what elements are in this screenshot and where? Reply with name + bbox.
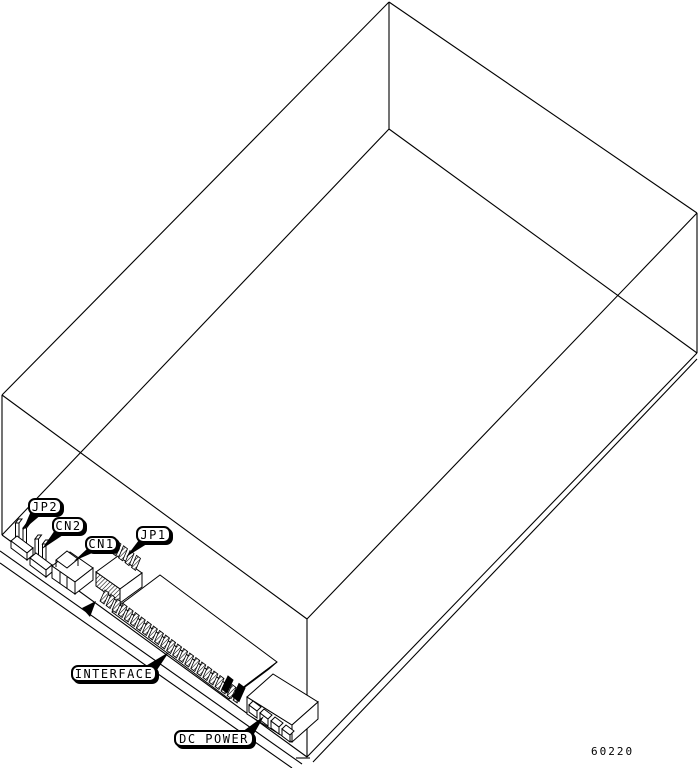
callout-cn1-label: CN1 <box>88 537 114 551</box>
jp2-connector <box>11 519 33 560</box>
callout-interface: INTERFACE <box>71 665 157 682</box>
callout-dc-power: DC POWER <box>174 730 254 747</box>
callout-jp1: JP1 <box>136 526 171 543</box>
chassis-wireframe <box>2 2 697 757</box>
pcb-edge-strip <box>0 353 697 768</box>
callout-cn2: CN2 <box>52 517 85 534</box>
cn1-connector <box>52 551 93 594</box>
diagram-linework <box>0 0 699 768</box>
pin1-arrow <box>82 601 96 617</box>
callout-cn1: CN1 <box>85 536 118 552</box>
callout-cn2-label: CN2 <box>55 519 81 533</box>
drive-wireframe-diagram: JP2 CN2 CN1 JP1 INTERFACE DC POWER 60220 <box>0 0 699 768</box>
callout-interface-label: INTERFACE <box>75 667 154 681</box>
callout-jp1-label: JP1 <box>140 528 166 542</box>
callout-jp2-label: JP2 <box>32 500 58 514</box>
figure-number: 60220 <box>591 745 634 758</box>
callout-jp2: JP2 <box>28 498 62 515</box>
callout-dc-power-label: DC POWER <box>179 732 249 746</box>
